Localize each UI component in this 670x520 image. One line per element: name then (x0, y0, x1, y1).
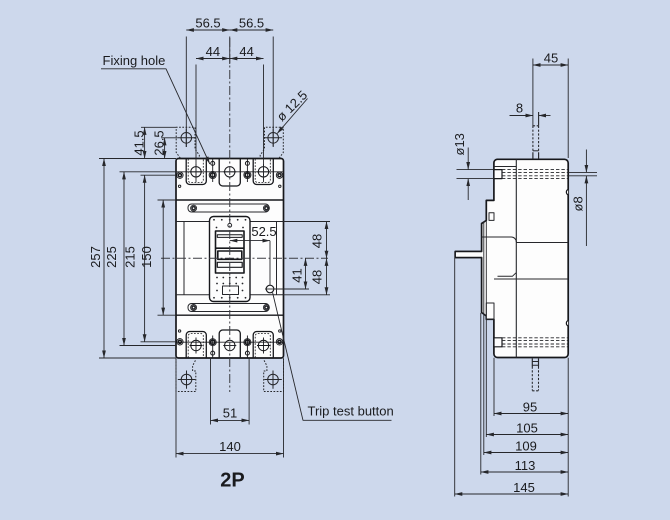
svg-text:Fixing hole: Fixing hole (103, 53, 166, 68)
svg-text:113: 113 (515, 458, 536, 473)
svg-text:105: 105 (516, 421, 538, 436)
svg-text:48: 48 (310, 270, 325, 284)
svg-text:44: 44 (239, 44, 253, 59)
svg-text:150: 150 (139, 246, 154, 268)
svg-text:45: 45 (544, 50, 558, 65)
svg-text:51: 51 (223, 406, 237, 421)
svg-text:225: 225 (104, 246, 119, 268)
svg-text:ø13: ø13 (452, 133, 467, 155)
svg-text:140: 140 (219, 439, 241, 454)
svg-text:95: 95 (523, 400, 537, 415)
svg-text:ø 12.5: ø 12.5 (274, 87, 311, 124)
svg-text:215: 215 (123, 246, 138, 268)
svg-text:2P: 2P (220, 470, 244, 492)
svg-text:44: 44 (206, 44, 220, 59)
svg-text:56.5: 56.5 (239, 16, 264, 31)
svg-text:109: 109 (515, 439, 537, 454)
svg-text:41: 41 (290, 268, 305, 282)
svg-text:26.5: 26.5 (152, 130, 167, 155)
svg-text:Trip test button: Trip test button (308, 403, 394, 418)
svg-text:56.5: 56.5 (195, 16, 220, 31)
svg-text:257: 257 (88, 246, 103, 268)
svg-text:41.5: 41.5 (132, 130, 147, 155)
svg-text:52.5: 52.5 (251, 224, 276, 239)
svg-text:ø8: ø8 (571, 196, 586, 211)
svg-text:48: 48 (310, 234, 325, 248)
svg-text:145: 145 (513, 480, 535, 495)
svg-text:8: 8 (516, 101, 523, 116)
